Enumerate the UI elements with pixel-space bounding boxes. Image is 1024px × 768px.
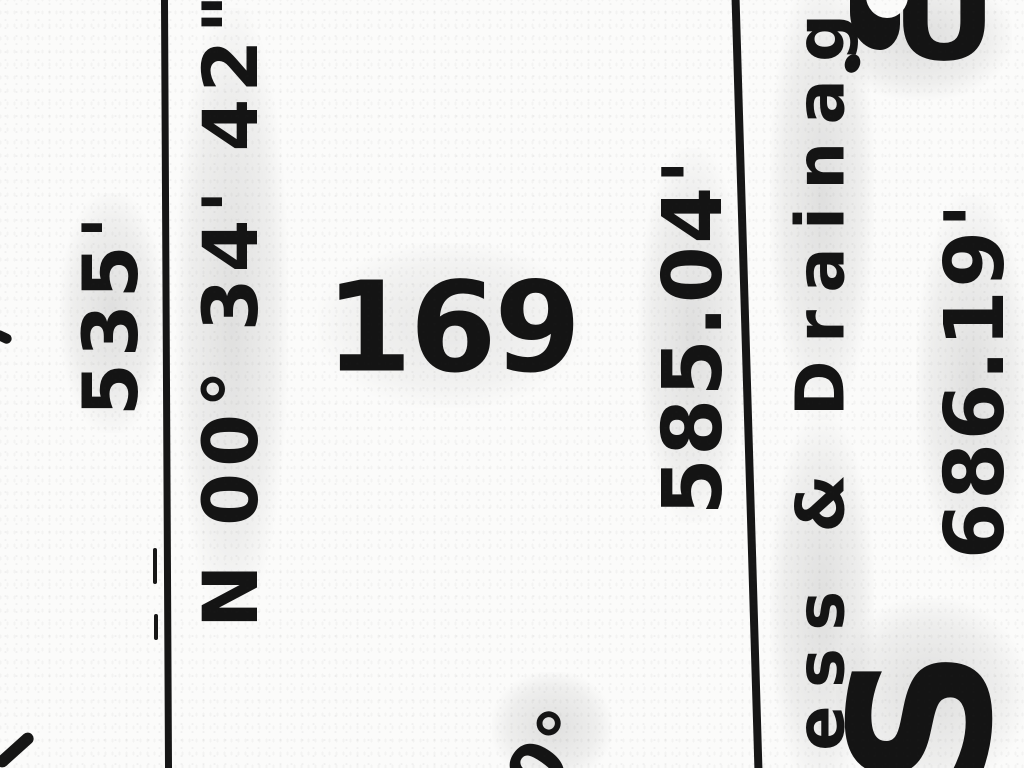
bearing-label-left: N 00° 34' 42" xyxy=(193,0,269,628)
plat-map-scan: 535' N 00° 34' 42" 169 585.04' Access & … xyxy=(0,0,1024,768)
line-artifact-dash xyxy=(153,548,157,584)
lot-number: 169 xyxy=(325,266,578,391)
distance-label-left: 535' xyxy=(73,210,149,416)
street-letter-fragment-bottom: S xyxy=(825,648,1020,768)
distance-label-right: 585.04' xyxy=(653,157,735,516)
tick-mark-bottom-left xyxy=(0,730,36,768)
bearing-fragment-bottom: 0° xyxy=(493,698,604,768)
line-artifact-dash xyxy=(154,614,158,640)
distance-label-outer: 686.19' xyxy=(935,201,1017,560)
character-fragment-left-edge xyxy=(0,329,13,346)
boundary-line-left xyxy=(161,0,172,768)
street-letter-fragment-top: U xyxy=(891,0,997,79)
